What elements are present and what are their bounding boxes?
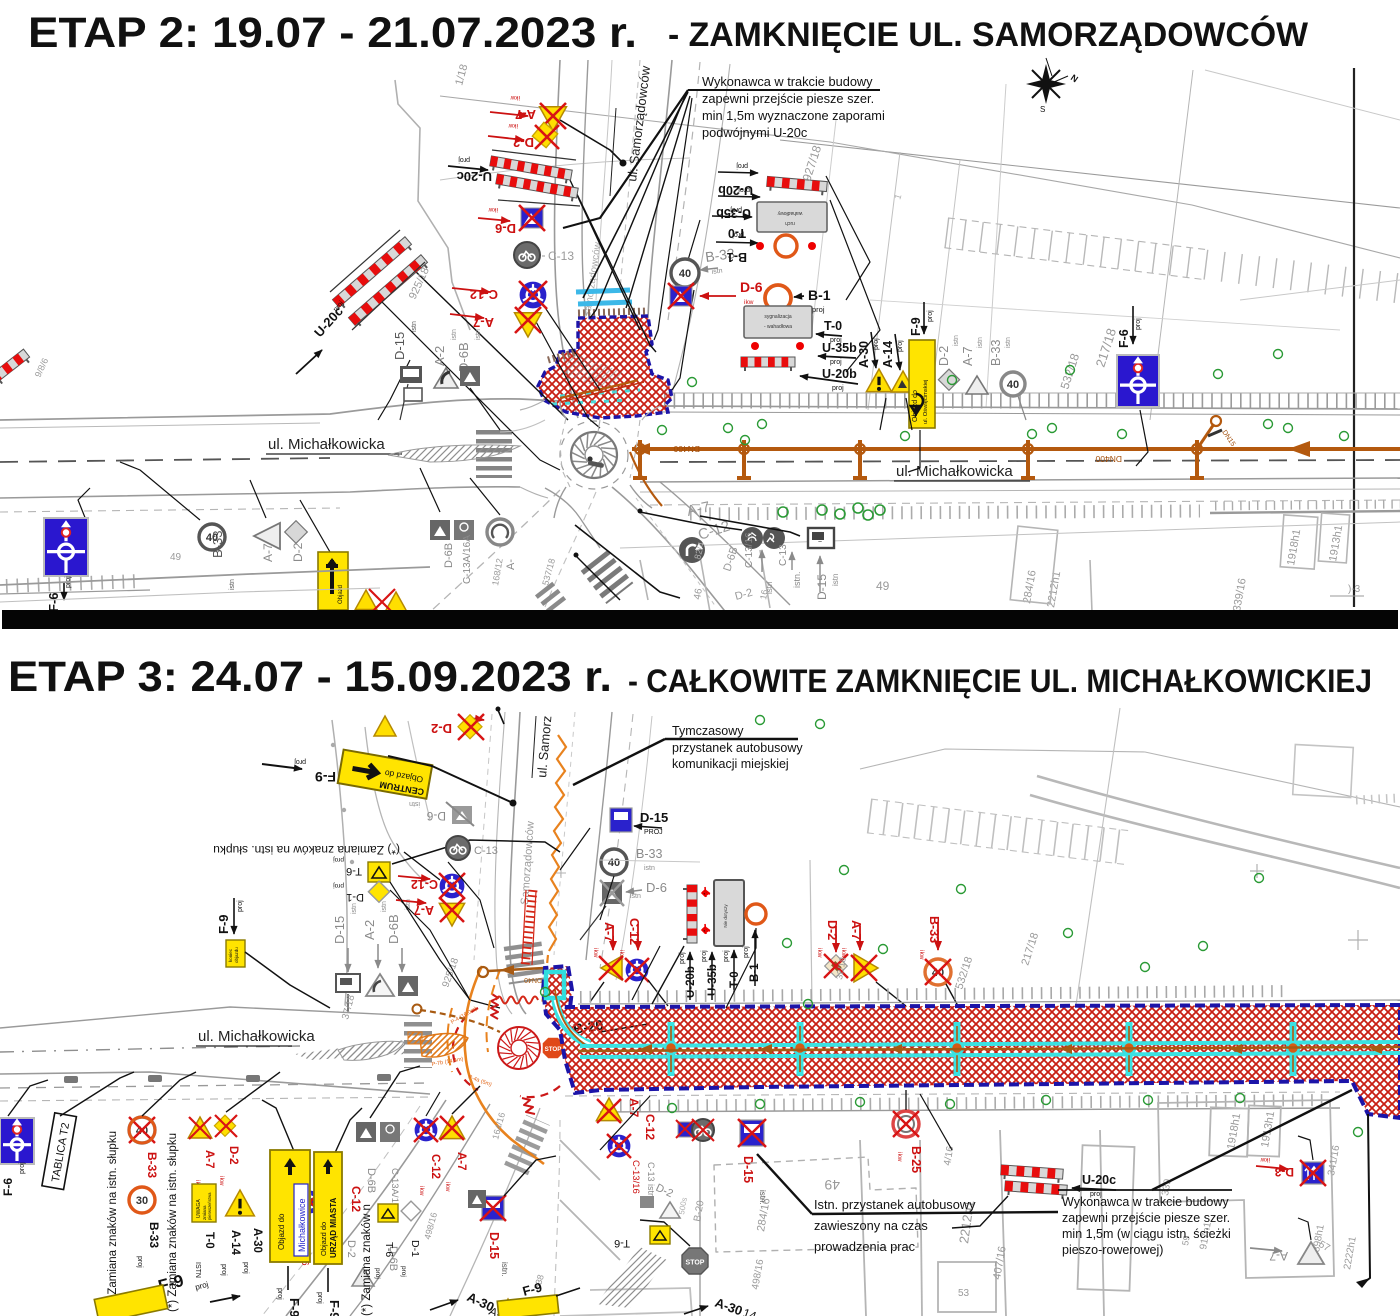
svg-text:D-2: D-2 xyxy=(345,1240,357,1258)
svg-text:C-13: C-13 xyxy=(548,249,574,263)
svg-text:D-15: D-15 xyxy=(640,810,668,825)
svg-text:Michałkowice: Michałkowice xyxy=(297,1198,307,1252)
svg-text:DN40: DN40 xyxy=(524,976,542,983)
svg-text:A-7: A-7 xyxy=(455,1152,467,1171)
svg-text:A-2: A-2 xyxy=(432,346,447,366)
svg-text:T-6: T-6 xyxy=(346,865,362,877)
svg-text:PROJ: PROJ xyxy=(644,829,663,836)
svg-text:F-6: F-6 xyxy=(46,593,61,613)
svg-text:Nie dotyczy: Nie dotyczy xyxy=(723,904,728,928)
svg-text:F-9: F-9 xyxy=(909,317,923,336)
svg-text:T-6: T-6 xyxy=(383,1242,395,1257)
svg-text:proj: proj xyxy=(19,1162,26,1174)
svg-text:pierwszeństwa: pierwszeństwa xyxy=(207,1192,212,1220)
svg-text:A-30: A-30 xyxy=(251,1228,263,1253)
svg-text:proj: proj xyxy=(1135,318,1142,330)
svg-text:A-7: A-7 xyxy=(203,1150,215,1169)
svg-text:proj: proj xyxy=(738,186,750,193)
svg-text:49: 49 xyxy=(170,552,182,563)
svg-text:A-7: A-7 xyxy=(414,903,434,917)
svg-text:Objazd: Objazd xyxy=(338,585,344,604)
svg-text:min 1,5m wyznaczone zaporami: min 1,5m wyznaczone zaporami xyxy=(702,108,885,123)
svg-text:objazdu: objazdu xyxy=(234,947,239,963)
svg-text:D-6B: D-6B xyxy=(443,543,455,568)
svg-text:D-2: D-2 xyxy=(937,346,951,366)
svg-text:49: 49 xyxy=(824,1177,840,1193)
svg-text:ikw: ikw xyxy=(508,122,518,129)
svg-text:istn: istn xyxy=(630,893,641,900)
svg-text:T-0: T-0 xyxy=(824,319,842,333)
svg-text:D-2: D-2 xyxy=(431,721,452,736)
svg-text:B-33: B-33 xyxy=(210,531,225,558)
svg-text:A-: A- xyxy=(505,559,517,570)
svg-text:B-1: B-1 xyxy=(727,250,747,264)
svg-text:D-1: D-1 xyxy=(409,1240,421,1257)
svg-text:proj: proj xyxy=(136,1256,143,1268)
svg-text:Objazd do: Objazd do xyxy=(277,1213,286,1250)
svg-text:A-14: A-14 xyxy=(881,341,895,368)
svg-text:)-3: )-3 xyxy=(1348,584,1361,595)
svg-text:proj: proj xyxy=(458,156,470,163)
svg-text:- wahadłowa: - wahadłowa xyxy=(764,324,792,330)
svg-text:istn: istn xyxy=(451,329,458,340)
svg-text:C-12: C-12 xyxy=(429,1154,441,1179)
svg-text:- ZAMKNIĘCIE UL. SAMORZĄDOWCÓW: - ZAMKNIĘCIE UL. SAMORZĄDOWCÓW xyxy=(668,16,1309,54)
svg-text:DN400: DN400 xyxy=(673,444,700,454)
svg-text:zapewni przejście piesze szer.: zapewni przejście piesze szer. xyxy=(1062,1211,1230,1225)
svg-text:ikw: ikw xyxy=(444,1182,451,1192)
svg-text:30: 30 xyxy=(136,1195,148,1207)
svg-text:Tymczasowy: Tymczasowy xyxy=(672,724,744,738)
svg-text:C-13 istn.: C-13 istn. xyxy=(646,1162,656,1201)
svg-text:ikw: ikw xyxy=(218,1176,225,1186)
svg-text:proj: proj xyxy=(374,1268,381,1279)
svg-text:ruch: ruch xyxy=(785,220,795,226)
svg-text:zapewni przejście piesze szer.: zapewni przejście piesze szer. xyxy=(702,91,874,106)
svg-text:A-14: A-14 xyxy=(229,1230,241,1256)
svg-text:T-0: T-0 xyxy=(203,1232,215,1249)
svg-text:D-6: D-6 xyxy=(495,221,516,236)
svg-text:wahadłowy: wahadłowy xyxy=(777,210,802,216)
svg-text:A-30: A-30 xyxy=(857,341,871,368)
svg-text:proj: proj xyxy=(812,305,825,314)
svg-text:A-2: A-2 xyxy=(362,920,377,940)
svg-text:D-6: D-6 xyxy=(740,279,763,295)
svg-text:(*) Zamiana znaków n: (*) Zamiana znaków n xyxy=(361,1204,373,1316)
svg-text:D-1: D-1 xyxy=(346,891,364,903)
svg-text:ikw: ikw xyxy=(488,206,498,213)
svg-text:istn: istn xyxy=(229,579,236,590)
svg-text:F-9: F-9 xyxy=(216,915,231,935)
svg-text:sygnalizacja: sygnalizacja xyxy=(764,314,791,320)
svg-text:ikw: ikw xyxy=(510,94,520,101)
svg-text:Wykonawca w trakcie budowy: Wykonawca w trakcie budowy xyxy=(1062,1195,1229,1209)
svg-text:B-33: B-33 xyxy=(145,1152,159,1178)
svg-text:proj: proj xyxy=(316,1292,323,1304)
svg-text:koniec: koniec xyxy=(228,948,233,962)
svg-text:STOP: STOP xyxy=(545,1046,562,1053)
svg-text:proj: proj xyxy=(333,882,344,889)
svg-text:D-15: D-15 xyxy=(741,1156,755,1183)
svg-text:C-13/16: C-13/16 xyxy=(630,1160,641,1194)
svg-text:ikw: ikw xyxy=(744,299,754,306)
svg-text:C-13: C-13 xyxy=(474,845,498,857)
svg-text:ul. Michałkowicka: ul. Michałkowicka xyxy=(198,1028,315,1045)
svg-text:istn: istn xyxy=(977,337,984,348)
svg-text:D-6B: D-6B xyxy=(365,1168,377,1193)
svg-text:istn: istn xyxy=(765,582,774,594)
svg-text:ul. Michałkowicka: ul. Michałkowicka xyxy=(896,463,1013,480)
svg-text:Objazd do: Objazd do xyxy=(319,1222,328,1256)
svg-text:T-0: T-0 xyxy=(729,971,741,988)
svg-text:U-35b: U-35b xyxy=(822,341,857,355)
svg-text:U-35b: U-35b xyxy=(707,964,719,996)
svg-text:proj: proj xyxy=(220,1264,227,1276)
svg-text:istn.: istn. xyxy=(792,571,802,588)
svg-text:Wykonawca w trakcie budowy: Wykonawca w trakcie budowy xyxy=(702,74,873,89)
svg-text:F-9: F-9 xyxy=(315,769,336,785)
svg-text:komunikacji miejskiej: komunikacji miejskiej xyxy=(672,757,789,771)
svg-text:ikw: ikw xyxy=(1260,1156,1270,1163)
svg-text:=: = xyxy=(818,538,822,545)
svg-text:(*) Zamiana znaków na istn. sł: (*) Zamiana znaków na istn. słupku xyxy=(213,843,400,857)
svg-text:ikw: ikw xyxy=(896,1152,903,1162)
svg-text:C-13A/16A: C-13A/16A xyxy=(462,535,473,584)
svg-text:49: 49 xyxy=(876,579,890,593)
svg-text:D-6: D-6 xyxy=(646,880,667,895)
svg-text:D-2: D-2 xyxy=(291,542,305,562)
svg-text:U-20c: U-20c xyxy=(457,169,492,184)
svg-text:- CAŁKOWITE ZAMKNIĘCIE UL. MIC: - CAŁKOWITE ZAMKNIĘCIE UL. MICHAŁKOWICKI… xyxy=(628,663,1372,699)
svg-text:istn: istn xyxy=(831,574,840,586)
svg-text:40: 40 xyxy=(608,857,620,869)
svg-text:53: 53 xyxy=(958,1288,970,1299)
svg-text:istn.: istn. xyxy=(758,1190,767,1205)
svg-text:STOP: STOP xyxy=(686,1260,705,1267)
svg-text:pieszo-rowerowej): pieszo-rowerowej) xyxy=(1062,1243,1163,1257)
svg-text:proj: proj xyxy=(743,946,750,958)
svg-text:A-7: A-7 xyxy=(961,347,975,367)
svg-text:proj: proj xyxy=(400,1266,407,1277)
svg-text:przystanek autobusowy: przystanek autobusowy xyxy=(672,741,803,755)
svg-text:istn: istn xyxy=(381,901,388,912)
svg-text:C-13: C-13 xyxy=(778,544,789,566)
svg-text:proj: proj xyxy=(276,1288,283,1300)
svg-text:D-15: D-15 xyxy=(332,916,347,944)
svg-text:ETAP 2: 19.07 - 21.07.2023 r.: ETAP 2: 19.07 - 21.07.2023 r. xyxy=(28,9,637,57)
svg-text:D-2: D-2 xyxy=(513,135,534,150)
svg-text:istn: istn xyxy=(644,865,655,872)
svg-text:B-33: B-33 xyxy=(989,340,1003,366)
svg-text:ISTN: ISTN xyxy=(194,1262,201,1278)
svg-text:D-15: D-15 xyxy=(815,574,829,600)
svg-text:podwójnymi U-20c: podwójnymi U-20c xyxy=(702,125,808,140)
svg-text:B-1: B-1 xyxy=(808,287,831,303)
svg-text:proj: proj xyxy=(242,1262,249,1274)
svg-text:F-9: F-9 xyxy=(287,1298,302,1316)
svg-text:F-9: F-9 xyxy=(327,1300,342,1316)
svg-text:40: 40 xyxy=(1007,379,1019,391)
svg-text:proj: proj xyxy=(832,385,844,392)
svg-text:DN400: DN400 xyxy=(1095,454,1122,464)
svg-text:proj: proj xyxy=(701,950,708,962)
svg-text:istn.: istn. xyxy=(500,1262,509,1277)
svg-text:ikw: ikw xyxy=(592,948,599,958)
svg-text:ikw: ikw xyxy=(816,948,823,958)
svg-text:D-2: D-2 xyxy=(227,1146,239,1165)
svg-text:B-33: B-33 xyxy=(147,1222,161,1248)
svg-text:proj: proj xyxy=(736,162,748,169)
svg-text:B-33: B-33 xyxy=(636,847,662,861)
svg-text:istn: istn xyxy=(411,321,418,332)
svg-text:proj: proj xyxy=(730,206,742,213)
svg-text:proj: proj xyxy=(723,950,730,962)
svg-text:F-6: F-6 xyxy=(1117,329,1131,348)
svg-text:min 1,5m (w ciągu istn. ścieżk: min 1,5m (w ciągu istn. ścieżki xyxy=(1062,1227,1231,1241)
svg-text:proj: proj xyxy=(333,856,344,863)
svg-text:F-6: F-6 xyxy=(1,1178,15,1196)
svg-text:ul. Michałkowicka: ul. Michałkowicka xyxy=(268,436,385,453)
svg-text:istn: istn xyxy=(351,903,358,914)
svg-text:ikw: ikw xyxy=(418,1186,425,1196)
svg-text:istn: istn xyxy=(1005,337,1012,348)
svg-text:ikw: ikw xyxy=(918,950,925,960)
svg-text:istn: istn xyxy=(953,335,960,346)
svg-text:U-20c: U-20c xyxy=(1082,1173,1116,1187)
svg-text:(*) Zamiana znaków na istn. sł: (*) Zamiana znaków na istn. słupku xyxy=(107,1131,119,1310)
svg-text:D-15: D-15 xyxy=(487,1232,501,1259)
svg-text:proj: proj xyxy=(927,310,934,322)
svg-text:S: S xyxy=(1040,105,1045,114)
svg-text:B-25: B-25 xyxy=(909,1146,923,1173)
svg-text:URZĄD MIASTA: URZĄD MIASTA xyxy=(329,1197,338,1258)
svg-text:C-12: C-12 xyxy=(470,287,498,302)
svg-text:D-6: D-6 xyxy=(426,809,446,823)
svg-text:proj: proj xyxy=(294,758,306,765)
svg-text:zawieszony na czas: zawieszony na czas xyxy=(814,1218,928,1233)
svg-text:C-12: C-12 xyxy=(643,1114,657,1140)
svg-text:Istn. przystanek autobusowy: Istn. przystanek autobusowy xyxy=(814,1197,976,1212)
svg-text:D-15: D-15 xyxy=(392,332,407,360)
svg-text:istn: istn xyxy=(475,329,482,340)
svg-text:istn: istn xyxy=(409,800,420,807)
svg-text:proj: proj xyxy=(732,231,744,238)
svg-text:A-7: A-7 xyxy=(261,543,275,562)
svg-text:T-6: T-6 xyxy=(614,1237,630,1249)
svg-text:C-13/16: C-13/16 xyxy=(744,532,755,568)
svg-text:ETAP 3: 24.07 - 15.09.2023 r.: ETAP 3: 24.07 - 15.09.2023 r. xyxy=(8,653,612,701)
svg-text:proj: proj xyxy=(237,900,244,912)
svg-text:proj: proj xyxy=(830,359,842,366)
svg-text:40: 40 xyxy=(679,268,691,280)
svg-text:prowadzenia prac: prowadzenia prac xyxy=(814,1239,916,1254)
svg-text:D-6B: D-6B xyxy=(386,914,401,944)
